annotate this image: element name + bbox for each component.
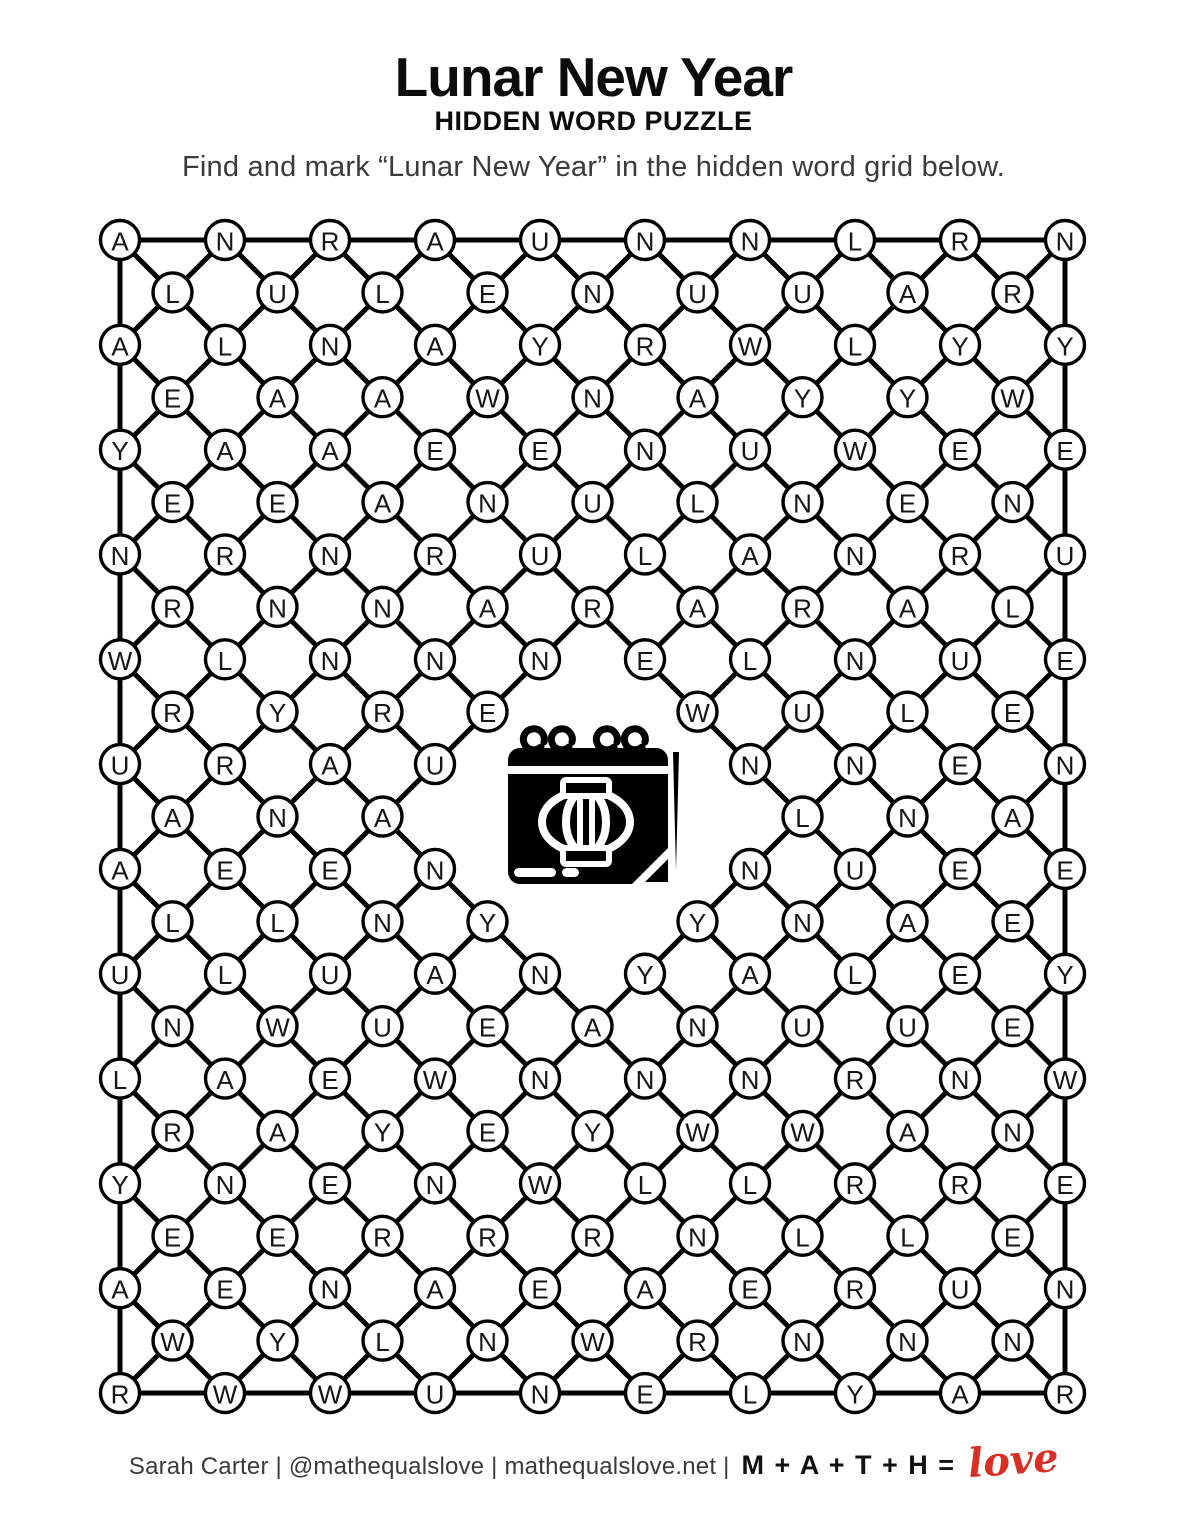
letter-text: L bbox=[795, 803, 809, 833]
letter-text: R bbox=[478, 1222, 497, 1252]
letter-text: N bbox=[636, 436, 655, 466]
letter-text: R bbox=[583, 1222, 602, 1252]
letter-text: A bbox=[741, 960, 759, 990]
letter-text: U bbox=[951, 646, 970, 676]
letter-text: L bbox=[1005, 593, 1019, 623]
letter-text: L bbox=[848, 331, 862, 361]
letter-text: R bbox=[216, 541, 235, 571]
letter-text: L bbox=[743, 1170, 757, 1200]
letter-text: Y bbox=[1056, 960, 1073, 990]
letter-text: W bbox=[1000, 384, 1025, 414]
letter-text: E bbox=[479, 1013, 496, 1043]
letter-text: N bbox=[531, 1380, 550, 1410]
letter-text: N bbox=[741, 1065, 760, 1095]
letter-text: W bbox=[423, 1065, 448, 1095]
letter-text: A bbox=[111, 331, 129, 361]
letter-text: L bbox=[375, 1327, 389, 1357]
letter-text: N bbox=[321, 541, 340, 571]
letter-text: Y bbox=[374, 1117, 391, 1147]
letter-text: R bbox=[163, 698, 182, 728]
letter-text: A bbox=[636, 1275, 654, 1305]
letter-text: U bbox=[1056, 541, 1075, 571]
letter-text: E bbox=[164, 489, 181, 519]
letter-text: W bbox=[213, 1380, 238, 1410]
letter-text: A bbox=[111, 855, 129, 885]
letter-text: A bbox=[689, 384, 707, 414]
letter-text: N bbox=[1056, 227, 1075, 257]
letter-text: E bbox=[899, 489, 916, 519]
letter-text: L bbox=[848, 960, 862, 990]
letter-text: E bbox=[479, 1117, 496, 1147]
letter-text: E bbox=[951, 855, 968, 885]
letter-text: A bbox=[899, 908, 917, 938]
letter-text: N bbox=[583, 279, 602, 309]
letter-text: N bbox=[741, 751, 760, 781]
footer: Sarah Carter | @mathequalslove | mathequ… bbox=[0, 1449, 1187, 1481]
letter-text: N bbox=[1056, 1275, 1075, 1305]
letter-text: E bbox=[1004, 1222, 1021, 1252]
letter-text: U bbox=[426, 751, 445, 781]
letter-text: L bbox=[795, 1222, 809, 1252]
letter-text: W bbox=[318, 1380, 343, 1410]
letter-text: A bbox=[426, 1275, 444, 1305]
letter-text: Y bbox=[1056, 331, 1073, 361]
letter-text: L bbox=[270, 908, 284, 938]
letter-text: A bbox=[321, 436, 339, 466]
letter-text: E bbox=[321, 1065, 338, 1095]
letter-text: A bbox=[899, 593, 917, 623]
letter-text: N bbox=[741, 227, 760, 257]
letter-text: E bbox=[531, 1275, 548, 1305]
letter-text: R bbox=[216, 751, 235, 781]
letter-text: A bbox=[374, 489, 392, 519]
letter-text: A bbox=[111, 227, 129, 257]
footer-love-word: love bbox=[967, 1446, 1059, 1476]
letter-text: N bbox=[321, 646, 340, 676]
letter-text: N bbox=[793, 489, 812, 519]
letter-text: U bbox=[951, 1275, 970, 1305]
letter-text: N bbox=[531, 960, 550, 990]
letter-text: W bbox=[790, 1117, 815, 1147]
letter-text: E bbox=[479, 698, 496, 728]
letter-text: E bbox=[636, 1380, 653, 1410]
letter-text: N bbox=[321, 331, 340, 361]
letter-text: R bbox=[846, 1065, 865, 1095]
letter-text: L bbox=[218, 646, 232, 676]
letter-text: N bbox=[1003, 1327, 1022, 1357]
letter-text: N bbox=[373, 908, 392, 938]
letter-text: U bbox=[898, 1013, 917, 1043]
letter-text: N bbox=[111, 541, 130, 571]
letter-text: U bbox=[321, 960, 340, 990]
letter-text: Y bbox=[689, 908, 706, 938]
letter-text: N bbox=[846, 541, 865, 571]
letter-text: A bbox=[374, 803, 392, 833]
letter-text: R bbox=[846, 1170, 865, 1200]
letter-text: R bbox=[846, 1275, 865, 1305]
letter-text: U bbox=[793, 279, 812, 309]
letter-text: E bbox=[1056, 855, 1073, 885]
letter-text: A bbox=[216, 1065, 234, 1095]
letter-text: Y bbox=[846, 1380, 863, 1410]
letter-text: L bbox=[165, 279, 179, 309]
letter-text: L bbox=[848, 227, 862, 257]
letter-text: N bbox=[321, 1275, 340, 1305]
footer-credit: Sarah Carter | @mathequalslove | mathequ… bbox=[129, 1453, 730, 1481]
letter-text: U bbox=[426, 1380, 445, 1410]
letter-text: R bbox=[793, 593, 812, 623]
letter-text: R bbox=[1003, 279, 1022, 309]
letter-text: U bbox=[111, 960, 130, 990]
letter-text: W bbox=[1053, 1065, 1078, 1095]
letter-text: A bbox=[374, 384, 392, 414]
letter-text: R bbox=[163, 1117, 182, 1147]
letter-text: L bbox=[218, 331, 232, 361]
letter-text: Y bbox=[111, 436, 128, 466]
letter-text: R bbox=[688, 1327, 707, 1357]
letter-text: N bbox=[268, 803, 287, 833]
letter-text: E bbox=[216, 1275, 233, 1305]
letter-text: N bbox=[478, 1327, 497, 1357]
letter-text: A bbox=[741, 541, 759, 571]
letter-text: U bbox=[793, 1013, 812, 1043]
letter-text: E bbox=[1056, 1170, 1073, 1200]
letter-text: R bbox=[951, 541, 970, 571]
letter-text: L bbox=[375, 279, 389, 309]
letter-text: A bbox=[426, 227, 444, 257]
letter-text: E bbox=[321, 855, 338, 885]
letter-text: E bbox=[1056, 436, 1073, 466]
footer-math-equation: M + A + T + H = bbox=[742, 1450, 956, 1481]
letter-text: L bbox=[165, 908, 179, 938]
letter-text: A bbox=[164, 803, 182, 833]
letter-text: N bbox=[741, 855, 760, 885]
letter-text: N bbox=[426, 646, 445, 676]
calendar-with-paper-lantern-icon bbox=[506, 729, 679, 886]
letter-text: W bbox=[108, 646, 133, 676]
letter-text: A bbox=[426, 331, 444, 361]
letter-text: U bbox=[531, 227, 550, 257]
letter-text: A bbox=[321, 751, 339, 781]
letter-text: A bbox=[111, 1275, 129, 1305]
letter-text: N bbox=[163, 1013, 182, 1043]
letter-text: N bbox=[373, 593, 392, 623]
letter-text: N bbox=[636, 1065, 655, 1095]
letter-text: N bbox=[268, 593, 287, 623]
letter-text: W bbox=[685, 1117, 710, 1147]
letter-text: A bbox=[584, 1013, 602, 1043]
letter-text: Y bbox=[269, 1327, 286, 1357]
letter-text: E bbox=[1004, 1013, 1021, 1043]
letter-text: N bbox=[531, 646, 550, 676]
letter-text: A bbox=[1004, 803, 1022, 833]
letter-text: E bbox=[321, 1170, 338, 1200]
letter-text: Y bbox=[636, 960, 653, 990]
letter-text: L bbox=[743, 646, 757, 676]
letter-text: R bbox=[951, 1170, 970, 1200]
letter-text: R bbox=[321, 227, 340, 257]
letter-text: E bbox=[531, 436, 548, 466]
letter-text: E bbox=[951, 436, 968, 466]
letter-text: U bbox=[583, 489, 602, 519]
letter-text: Y bbox=[899, 384, 916, 414]
letter-text: N bbox=[426, 1170, 445, 1200]
letter-text: E bbox=[164, 384, 181, 414]
letter-text: L bbox=[900, 698, 914, 728]
letter-text: N bbox=[531, 1065, 550, 1095]
letter-text: R bbox=[583, 593, 602, 623]
letter-text: N bbox=[1003, 489, 1022, 519]
letter-text: L bbox=[113, 1065, 127, 1095]
letter-text: U bbox=[846, 855, 865, 885]
letter-text: R bbox=[373, 1222, 392, 1252]
letter-text: E bbox=[1004, 908, 1021, 938]
letter-text: N bbox=[688, 1013, 707, 1043]
letter-text: E bbox=[479, 279, 496, 309]
letter-text: N bbox=[216, 1170, 235, 1200]
letter-text: L bbox=[743, 1380, 757, 1410]
letter-text: U bbox=[793, 698, 812, 728]
letter-text: N bbox=[898, 803, 917, 833]
letter-text: E bbox=[1056, 646, 1073, 676]
letter-text: N bbox=[216, 227, 235, 257]
letter-text: N bbox=[793, 1327, 812, 1357]
letter-text: L bbox=[638, 541, 652, 571]
letter-text: L bbox=[218, 960, 232, 990]
letter-text: Y bbox=[531, 331, 548, 361]
letter-text: E bbox=[164, 1222, 181, 1252]
letter-text: U bbox=[741, 436, 760, 466]
letter-text: N bbox=[688, 1222, 707, 1252]
letter-text: E bbox=[1004, 698, 1021, 728]
letter-text: N bbox=[583, 384, 602, 414]
letter-text: R bbox=[951, 227, 970, 257]
letter-text: N bbox=[898, 1327, 917, 1357]
letter-text: R bbox=[373, 698, 392, 728]
letter-text: R bbox=[426, 541, 445, 571]
letter-text: W bbox=[265, 1013, 290, 1043]
letter-text: R bbox=[1056, 1380, 1075, 1410]
letter-text: N bbox=[846, 751, 865, 781]
letter-text: A bbox=[269, 384, 287, 414]
letter-text: A bbox=[951, 1380, 969, 1410]
letter-text: W bbox=[685, 698, 710, 728]
letter-text: E bbox=[426, 436, 443, 466]
letter-text: Y bbox=[111, 1170, 128, 1200]
letter-text: R bbox=[163, 593, 182, 623]
letter-text: L bbox=[638, 1170, 652, 1200]
letter-text: N bbox=[846, 646, 865, 676]
letter-text: N bbox=[426, 855, 445, 885]
letter-text: A bbox=[899, 1117, 917, 1147]
letter-text: N bbox=[951, 1065, 970, 1095]
letter-text: N bbox=[1056, 751, 1075, 781]
letter-text: Y bbox=[794, 384, 811, 414]
letter-text: A bbox=[216, 436, 234, 466]
letter-text: U bbox=[688, 279, 707, 309]
letter-text: E bbox=[636, 646, 653, 676]
letter-text: U bbox=[111, 751, 130, 781]
letter-text: N bbox=[793, 908, 812, 938]
letter-text: A bbox=[269, 1117, 287, 1147]
letter-text: N bbox=[636, 227, 655, 257]
letter-text: U bbox=[531, 541, 550, 571]
letter-text: W bbox=[580, 1327, 605, 1357]
letter-text: A bbox=[426, 960, 444, 990]
letter-text: U bbox=[373, 1013, 392, 1043]
letter-text: N bbox=[478, 489, 497, 519]
letter-text: Y bbox=[479, 908, 496, 938]
letter-text: L bbox=[690, 489, 704, 519]
letter-text: E bbox=[269, 1222, 286, 1252]
letter-text: U bbox=[268, 279, 287, 309]
letter-text: E bbox=[951, 751, 968, 781]
letter-text: Y bbox=[269, 698, 286, 728]
letter-text: R bbox=[111, 1380, 130, 1410]
letter-text: Y bbox=[951, 331, 968, 361]
letter-text: Y bbox=[584, 1117, 601, 1147]
letter-text: E bbox=[269, 489, 286, 519]
letter-text: A bbox=[689, 593, 707, 623]
letter-text: R bbox=[636, 331, 655, 361]
letter-text: W bbox=[475, 384, 500, 414]
letter-text: W bbox=[738, 331, 763, 361]
letter-text: W bbox=[528, 1170, 553, 1200]
letter-text: E bbox=[216, 855, 233, 885]
letter-text: E bbox=[951, 960, 968, 990]
letter-text: L bbox=[900, 1222, 914, 1252]
letter-text: W bbox=[160, 1327, 185, 1357]
letter-text: W bbox=[843, 436, 868, 466]
letter-text: A bbox=[479, 593, 497, 623]
puzzle-grid[interactable]: ANRAUNNLRNLULENUUARALNAYRWLYYEAAWNAYYWYA… bbox=[0, 0, 1187, 1536]
letter-text: N bbox=[1003, 1117, 1022, 1147]
letter-text: E bbox=[741, 1275, 758, 1305]
letter-text: A bbox=[899, 279, 917, 309]
